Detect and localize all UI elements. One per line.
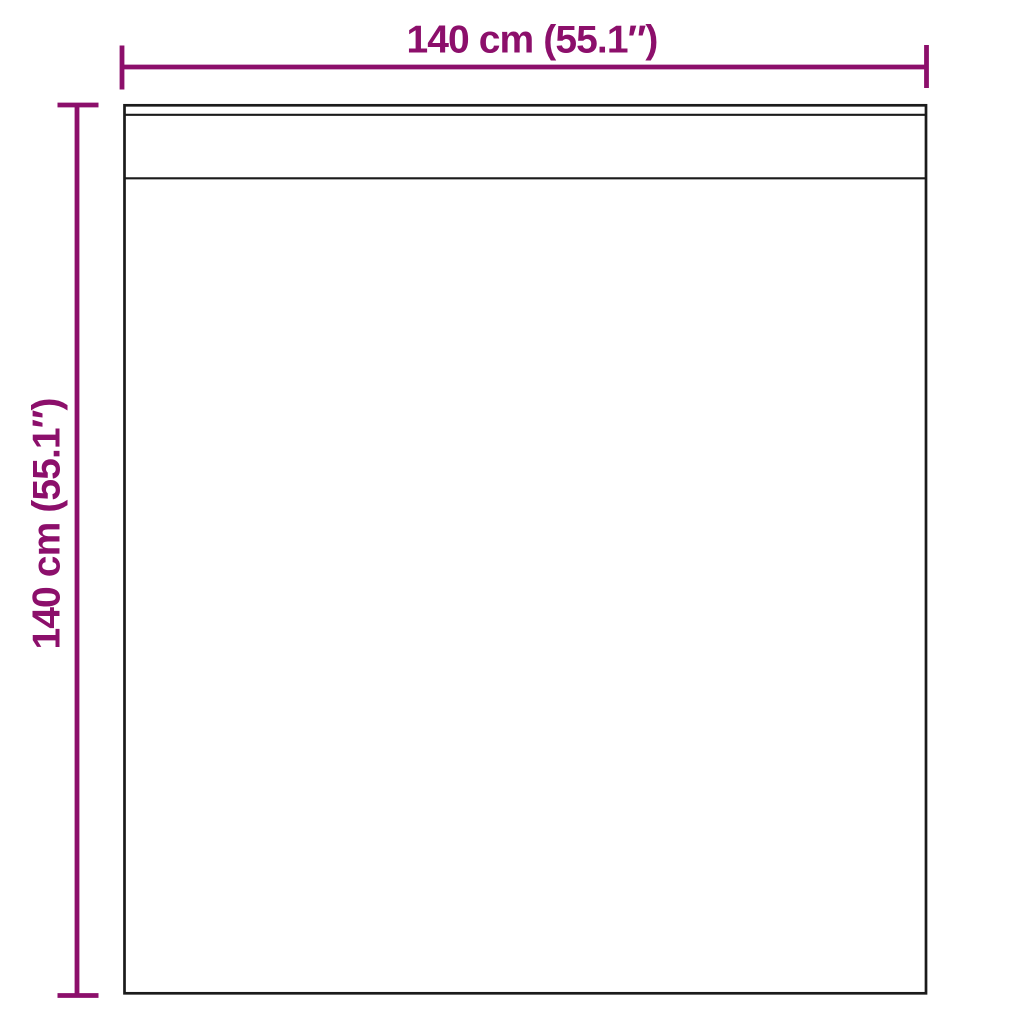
svg-text:140 cm (55.1″): 140 cm (55.1″) (26, 398, 69, 649)
svg-text:140 cm (55.1″): 140 cm (55.1″) (406, 19, 657, 62)
